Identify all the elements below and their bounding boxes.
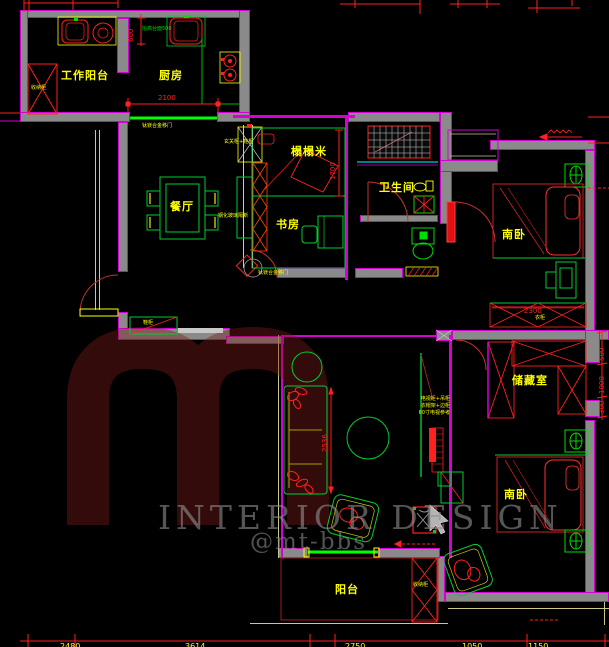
dim-bottom-4: 1050 bbox=[462, 643, 482, 647]
label-cabinet-balcony: 收纳柜 bbox=[413, 583, 428, 588]
floor-arrow-annotation bbox=[395, 541, 437, 547]
dim-bottom-2: 3614 bbox=[185, 643, 205, 647]
bedroom2-closet bbox=[432, 428, 463, 503]
dim-2536-line bbox=[329, 388, 333, 493]
entry-threshold bbox=[178, 328, 223, 333]
storage-door bbox=[456, 340, 486, 370]
window-sill-annotation bbox=[540, 130, 582, 140]
label-tv-notes: 电视柜+吊柜 衣帽架+边柜 60寸电视参考 bbox=[404, 396, 450, 417]
room-label-study: 书房 bbox=[276, 219, 300, 230]
label-sliding-door-kitchen: 钛镁合金移门 bbox=[142, 124, 172, 129]
dim-bottom-1: 2480 bbox=[60, 643, 80, 647]
label-cabinet-left: 收纳柜 bbox=[31, 86, 46, 91]
dim-right-1000: 1000 bbox=[599, 376, 606, 394]
toilet-icon bbox=[414, 181, 433, 191]
corner-box-x bbox=[436, 330, 452, 341]
bottom-dimension-line bbox=[20, 620, 609, 647]
nightstand-bedroom1 bbox=[546, 262, 576, 298]
kitchen-stove bbox=[220, 52, 240, 83]
study-desk bbox=[302, 216, 343, 248]
dim-600: 600 bbox=[128, 29, 135, 42]
dim-bottom-3: 2750 bbox=[345, 643, 365, 647]
toilet-fixture bbox=[412, 228, 434, 259]
dim-1700: 1700 bbox=[330, 162, 337, 180]
room-label-dining: 餐厅 bbox=[170, 201, 194, 212]
rug-circle-large bbox=[347, 417, 389, 459]
dim-2536: 2536 bbox=[322, 434, 329, 452]
dim-right-500: 500 bbox=[599, 348, 606, 361]
watermark-handle: @mt-bbs bbox=[250, 529, 367, 555]
label-glass-partition: 钢化玻璃隔断 bbox=[218, 214, 248, 219]
room-label-bathroom: 卫生间 bbox=[379, 182, 415, 193]
radiator-bedroom2-bottom bbox=[565, 530, 588, 552]
partition-screen-hatch bbox=[253, 163, 267, 251]
bedroom1-window bbox=[448, 130, 498, 160]
bedroom1-door bbox=[447, 202, 495, 242]
tv-note-line3: 60寸电视参考 bbox=[404, 410, 450, 417]
radiator-bedroom2-top bbox=[565, 430, 588, 452]
room-label-tatami: 榻榻米 bbox=[291, 146, 327, 157]
room-label-balcony: 阳台 bbox=[335, 584, 359, 595]
balcony-cabinet-hatch bbox=[412, 558, 437, 622]
shower-window-grid bbox=[368, 126, 430, 158]
shoe-cabinet-box bbox=[128, 315, 188, 337]
label-entry-cabinet: 玄关柜+鞋柜 bbox=[224, 140, 253, 145]
dim-2300: 2300 bbox=[524, 308, 542, 315]
study-zone bbox=[252, 196, 345, 268]
room-label-storage: 储藏室 bbox=[512, 375, 548, 386]
room-label-work-balcony: 工作阳台 bbox=[61, 70, 109, 81]
kitchen-counter-edge bbox=[202, 38, 239, 104]
tv-wall bbox=[421, 353, 451, 486]
work-balcony-sink bbox=[58, 17, 116, 45]
label-sliding-door-study: 钛镁合金移门 bbox=[258, 271, 288, 276]
dim-right-300: 300 bbox=[599, 401, 606, 414]
entry-door bbox=[80, 275, 118, 316]
kitchen-sink bbox=[167, 15, 205, 46]
dim-2100: 2100 bbox=[158, 95, 176, 102]
room-label-bedroom1: 南卧 bbox=[502, 229, 526, 240]
balcony-outline bbox=[281, 558, 438, 620]
tv-note-line2: 衣帽架+边柜 bbox=[404, 403, 450, 410]
bathroom-threshold-hatch bbox=[406, 267, 438, 276]
edge-dimension-marks bbox=[0, 0, 609, 188]
dim-bottom-5: 1150 bbox=[528, 643, 548, 647]
tv-note-line1: 电视柜+吊柜 bbox=[404, 396, 450, 403]
floorplan-canvas[interactable]: 工作阳台 厨房 餐厅 榻榻米 书房 卫生间 南卧 储藏室 南卧 阳台 收纳柜 玄… bbox=[0, 0, 609, 647]
room-label-kitchen: 厨房 bbox=[159, 70, 183, 81]
armchair-bedroom2 bbox=[442, 542, 495, 597]
label-kitchen-counter-note: 抬高台面500 bbox=[142, 27, 172, 32]
label-wardrobe: 衣柜 bbox=[535, 316, 545, 321]
washing-machine bbox=[414, 196, 434, 213]
partition-cabinet bbox=[237, 177, 252, 238]
bed-bedroom1 bbox=[493, 184, 585, 258]
